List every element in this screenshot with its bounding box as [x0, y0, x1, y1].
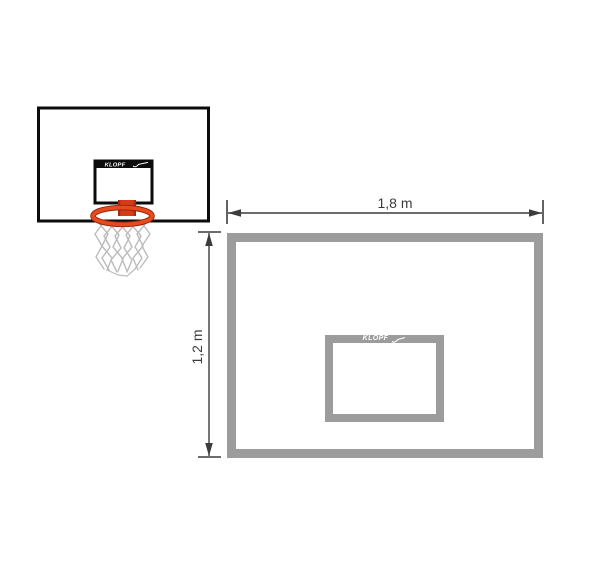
left-arrowhead-icon	[228, 209, 241, 217]
diagram-logo-text: KLOPF	[363, 335, 389, 343]
diagram-logo-swoosh-icon	[391, 336, 406, 343]
net	[95, 222, 150, 276]
bottom-arrowhead-icon	[205, 443, 213, 456]
shooting-square-diagram	[325, 335, 444, 422]
right-arrowhead-icon	[529, 209, 542, 217]
product-logo-text: KLOPF	[105, 163, 126, 169]
product-dimension-diagram: KLOPF	[0, 0, 600, 570]
height-dimension-label: 1,2 m	[190, 323, 204, 371]
width-dimension-label: 1,8 m	[230, 196, 560, 210]
diagram-logo: KLOPF	[325, 335, 444, 343]
top-arrowhead-icon	[205, 233, 213, 246]
